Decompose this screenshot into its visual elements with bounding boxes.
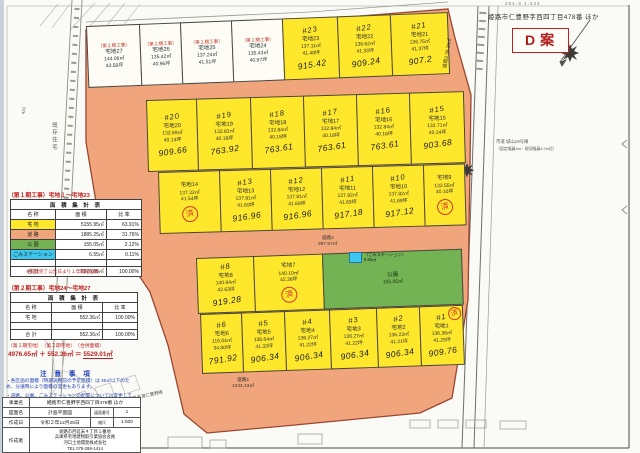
handwritten-price: 909.24	[350, 56, 380, 72]
handwritten-price: 909.66	[158, 145, 188, 160]
lot-宅地26: （第２期工事）宅地26135.42㎡40.96坪	[139, 22, 183, 86]
sold-stamp: 済	[447, 306, 463, 322]
right-road-width-note: （認定幅員4m・現況幅員4.2m位）	[496, 146, 557, 152]
lot-宅地23: #23宅地23137.11㎡41.48坪915.42	[282, 16, 340, 80]
lot-row-2: #20宅地20132.69㎡40.14坪909.66#19宅地19132.83㎡…	[146, 91, 466, 172]
handwritten-mark: #8	[219, 262, 231, 273]
lot-宅地10: #10宅地10137.82㎡41.69坪917.12	[372, 165, 426, 228]
sheet-title: 姫路市仁豊野字西四丁目478番 ほか	[488, 12, 599, 21]
handwritten-price: 916.96	[282, 209, 312, 224]
lot-宅地12: #12宅地12137.81㎡41.69坪916.96	[270, 167, 324, 230]
lot-row-4: #8宅地8140.94㎡42.63坪919.28宅地7140.10㎡42.38坪…	[196, 249, 464, 314]
lot-宅地20: #20宅地20132.69㎡40.14坪909.66	[146, 99, 199, 172]
handwritten-price: 906.34	[293, 350, 323, 365]
area-summary-table-phase2: 面 積 集 計 表名 称面 積比 率宅 地552.36㎡100.00% 合 計5…	[10, 292, 138, 340]
handwritten-price: 791.92	[207, 353, 237, 368]
handwritten-price: 906.34	[384, 346, 414, 361]
road1-label: 道路11344.43㎡	[232, 378, 254, 390]
table2-title: （第２期工事）宅地24～宅地27	[8, 283, 90, 292]
handwritten-price: 916.96	[231, 210, 261, 225]
lot-宅地21: #21宅地21136.75㎡41.37坪907.2	[390, 12, 450, 76]
lot-宅地8: #8宅地8140.94㎡42.63坪919.28	[196, 256, 256, 314]
handwritten-mark: #21	[411, 20, 428, 32]
handwritten-mark: #15	[428, 104, 445, 116]
lot-宅地22: #22宅地22136.62㎡41.33坪909.24	[337, 14, 393, 78]
merge-note-captions: （第１期宅地） （第２期宅地） （合併面積）	[8, 342, 104, 349]
lot-宅地1: #1宅地1136.36㎡41.25坪909.76済	[419, 305, 465, 366]
corner-note: 281-3 1:444	[505, 1, 541, 6]
lot-宅地4: #4宅地4136.27㎡41.22坪906.34	[284, 309, 332, 371]
lot-宅地6: #6宅地6115.04㎡34.80坪791.92	[200, 313, 244, 374]
area-summary-table-phase1: 面 積 集 計 表名 称面 積比 率宅 地5155.95㎡63.91%道 路18…	[10, 199, 142, 277]
table1-title: （第１期工事）宅地１～宅地23	[8, 190, 90, 199]
lot-宅地16: #16宅地16132.84㎡40.18坪763.61	[356, 93, 412, 166]
handwritten-price: 763.61	[369, 139, 399, 154]
sold-stamp: 済	[181, 204, 200, 223]
lot-宅地14: 宅地14137.32㎡41.54坪済	[158, 170, 222, 234]
handwritten-mark: #2	[392, 314, 404, 325]
handwritten-mark: #18	[269, 109, 286, 121]
phase-note: ※開発完了公告日より１年間経過後	[26, 269, 99, 275]
merge-note-equation: 4976.65㎡ ＋ 552.36㎡ ＝ 5529.01㎡	[8, 349, 113, 358]
lot-宅地19: #19宅地19132.83㎡40.18坪763.92	[196, 97, 253, 171]
lot-宅地15: #15宅地15132.71㎡40.14坪903.68	[409, 91, 466, 165]
handwritten-price: 763.61	[316, 140, 346, 155]
handwritten-mark: #17	[322, 107, 339, 119]
lot-row-1: （第２期工事）宅地27144.06㎡43.58坪（第２期工事）宅地26135.4…	[86, 12, 450, 88]
trash-station: （ごみステーション）6.55㎡	[349, 252, 406, 263]
scanned-subdivision-plan-sheet: （第２期工事）宅地27144.06㎡43.58坪（第２期工事）宅地26135.4…	[0, 0, 640, 453]
handwritten-mark: #3	[347, 315, 359, 326]
lot-宅地9: 宅地9132.55㎡40.10坪済	[423, 163, 467, 226]
lot-row-5: #6宅地6115.04㎡34.80坪791.92#5宅地5136.64㎡41.3…	[200, 305, 465, 374]
handwritten-price: 919.28	[211, 294, 241, 309]
handwritten-price: 917.12	[384, 206, 414, 221]
trash-station-icon	[349, 252, 362, 263]
handwritten-price: 909.76	[427, 345, 457, 360]
handwritten-mark: #20	[164, 112, 181, 124]
handwritten-mark: #6	[215, 320, 227, 331]
handwritten-mark: #23	[302, 25, 319, 37]
sold-stamp: 済	[435, 197, 454, 216]
lot-宅地2: #2宅地2136.23㎡41.21坪906.34	[376, 306, 422, 367]
handwritten-price: 917.18	[333, 207, 363, 222]
handwritten-mark: #19	[216, 110, 233, 122]
handwritten-price: 903.68	[423, 137, 453, 152]
lot-宅地25: （第２期工事）宅地25137.24㎡41.51坪	[180, 20, 234, 84]
handwritten-price: 915.42	[296, 58, 326, 74]
caution-item: ・各区画の面積（時期調整前の予定面積）は 35㎡以下のため、分譲時により面積の変…	[6, 378, 134, 391]
handwritten-mark: #10	[390, 173, 407, 185]
existing-housing-label: 既存住宅	[50, 122, 58, 152]
plan-label-badge: D案	[512, 28, 569, 53]
handwritten-mark: #13	[237, 177, 254, 189]
handwritten-price: 906.34	[339, 348, 369, 363]
lot-row-3: 宅地14137.32㎡41.54坪済#13宅地13137.81㎡41.69坪91…	[158, 163, 467, 234]
lot-宅地5: #5宅地5136.64㎡41.33坪906.34	[241, 311, 287, 372]
handwritten-mark: #12	[288, 175, 305, 187]
handwritten-mark: #1	[435, 312, 447, 323]
lot-宅地11: #11宅地11137.82㎡41.69坪917.18	[321, 166, 375, 229]
road2-label: 道路2397.57㎡	[318, 236, 337, 248]
lot-宅地3: #3宅地3136.27㎡41.22坪906.34	[329, 308, 379, 370]
handwritten-price: 906.34	[249, 351, 279, 366]
lot-宅地7: 宅地7140.10㎡42.38坪済	[253, 254, 325, 312]
handwritten-mark: #16	[375, 106, 392, 118]
right-road-name: 市道 城山19号線	[496, 139, 528, 145]
handwritten-price: 763.61	[263, 142, 293, 157]
lot-宅地18: #18宅地18132.84㎡40.18坪763.61	[250, 96, 306, 169]
lot-宅地13: #13宅地13137.81㎡41.69坪916.96	[219, 169, 273, 232]
handwritten-mark: #5	[257, 318, 269, 329]
title-block: 事業名姫路市仁豊野字西四丁目478番 ほか図面名計画平面図図面番号1作成日令和２…	[2, 397, 141, 453]
handwritten-price: 907.2	[408, 54, 433, 69]
lot-宅地24: （第２期工事）宅地24135.43㎡40.97坪	[231, 18, 285, 82]
handwritten-mark: #4	[301, 317, 313, 328]
handwritten-price: 763.92	[210, 143, 240, 158]
handwritten-mark: #22	[356, 22, 373, 34]
handwritten-mark: #11	[339, 174, 355, 186]
sold-stamp: 済	[280, 285, 299, 304]
lot-宅地27: （第２期工事）宅地27144.06㎡43.58坪	[86, 24, 142, 88]
lot-宅地17: #17宅地17132.84㎡40.18坪763.61	[303, 94, 359, 167]
